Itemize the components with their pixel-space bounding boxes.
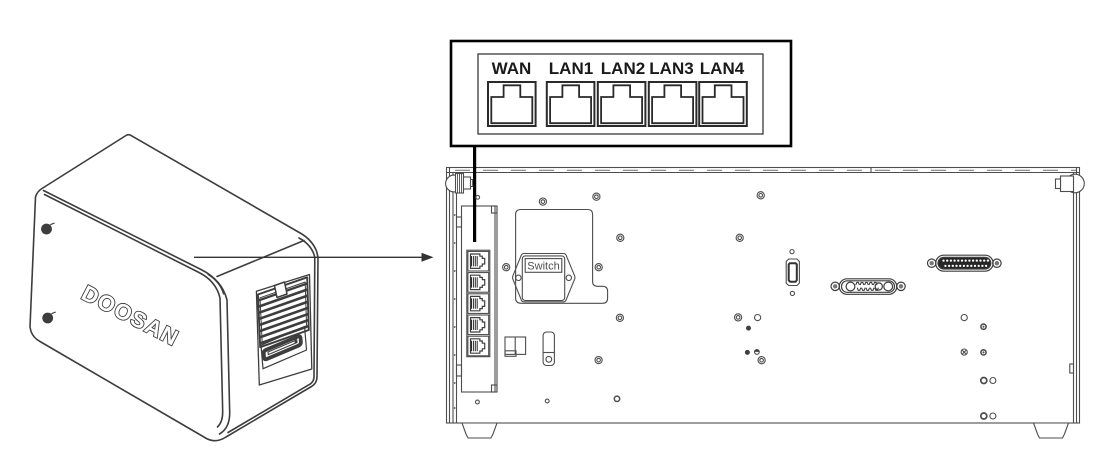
svg-text:WAN: WAN: [492, 59, 532, 78]
svg-text:Switch: Switch: [527, 261, 559, 273]
svg-text:LAN1: LAN1: [549, 59, 593, 78]
svg-text:LAN4: LAN4: [700, 59, 745, 78]
svg-text:LAN2: LAN2: [601, 59, 645, 78]
svg-text:LAN3: LAN3: [649, 59, 693, 78]
